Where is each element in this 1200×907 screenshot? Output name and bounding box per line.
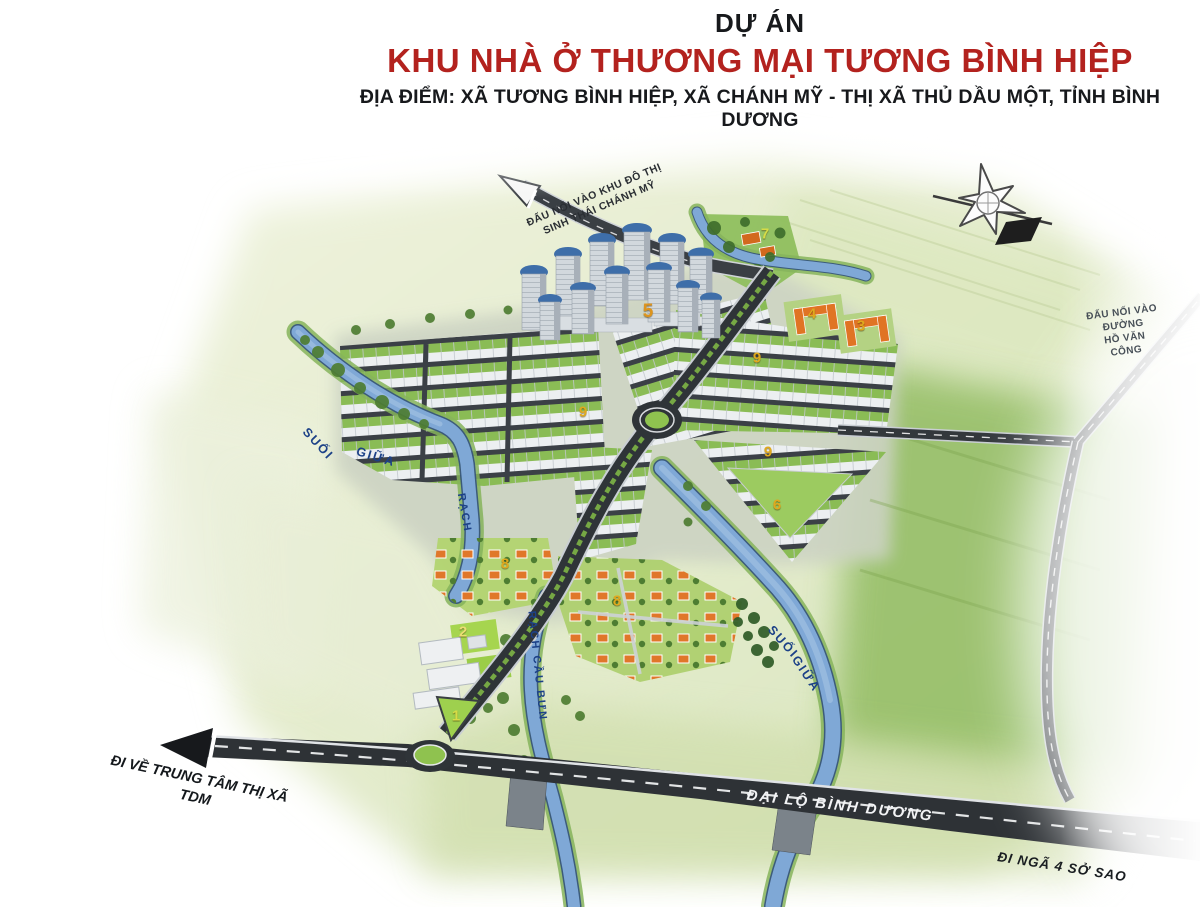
site-plan-svg — [0, 0, 1200, 907]
location-subtitle: ĐỊA ĐIỂM: XÃ TƯƠNG BÌNH HIỆP, XÃ CHÁNH M… — [330, 86, 1190, 132]
project-label: DỰ ÁN — [330, 8, 1190, 39]
roundabout-south — [405, 740, 455, 772]
site-plan-rendering — [0, 0, 1200, 907]
poster-header: DỰ ÁN KHU NHÀ Ở THƯƠNG MẠI TƯƠNG BÌNH HI… — [330, 8, 1190, 132]
arrow-to-tdm-icon — [160, 728, 213, 768]
roundabout-central — [632, 401, 682, 439]
page-title: KHU NHÀ Ở THƯƠNG MẠI TƯƠNG BÌNH HIỆP — [330, 42, 1190, 80]
